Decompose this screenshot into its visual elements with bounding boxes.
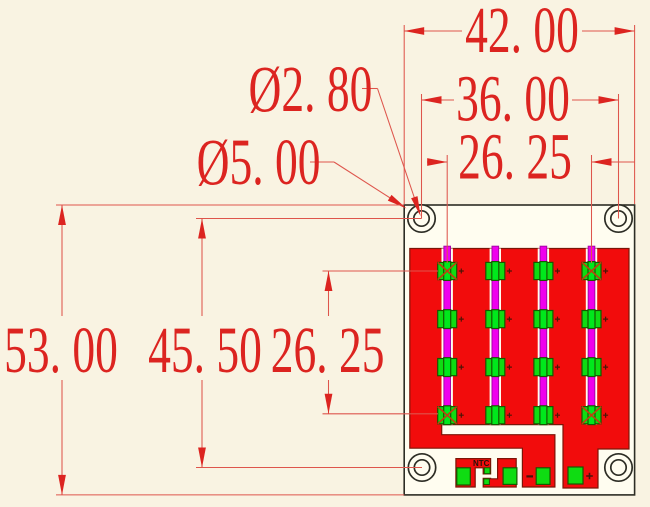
svg-text:53. 00: 53. 00 xyxy=(4,314,118,387)
svg-text:26. 25: 26. 25 xyxy=(271,314,385,387)
svg-text:Ø2. 80: Ø2. 80 xyxy=(249,53,373,126)
svg-text:26. 25: 26. 25 xyxy=(458,120,572,193)
svg-text:42. 00: 42. 00 xyxy=(465,0,579,67)
svg-text:Ø5. 00: Ø5. 00 xyxy=(197,126,321,199)
svg-text:45. 50: 45. 50 xyxy=(148,314,262,387)
svg-text:NTC: NTC xyxy=(473,459,490,468)
